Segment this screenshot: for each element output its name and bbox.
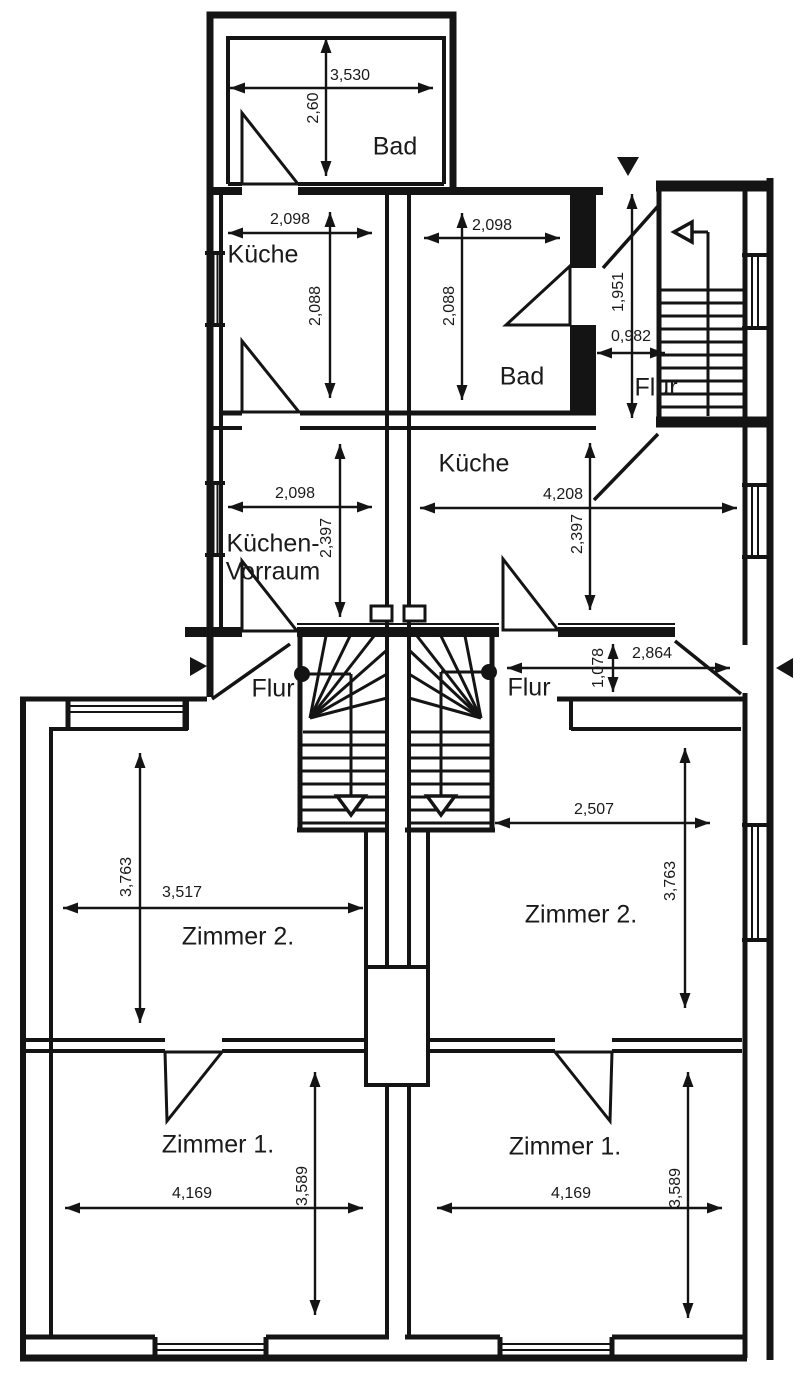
- dim-zimmer1-right-height: 3,589: [667, 1168, 684, 1208]
- walls: [20, 15, 773, 1360]
- dim-flur-top-width: 0,982: [611, 328, 651, 345]
- stairwell-central-right: [409, 636, 497, 823]
- window-zimmer2-left-top: [68, 697, 185, 731]
- stair-down-arrow-icon: [427, 796, 455, 815]
- room-label-vorraum-line1: Küchen-: [226, 530, 319, 558]
- wall-chimney-block: [366, 967, 428, 1085]
- dim-kueche-right-height: 2,397: [569, 514, 586, 554]
- door-bad-top: [242, 113, 298, 184]
- dim-flur-top-height: 1,951: [610, 272, 627, 312]
- dim-kueche-right-width: 4,208: [543, 486, 583, 503]
- room-label-flur-right: Flur: [507, 674, 550, 702]
- dim-kueche-left-height: 2,088: [307, 286, 324, 326]
- room-label-kueche-right: Küche: [439, 450, 510, 478]
- dim-bad-middle-height: 2,088: [441, 286, 458, 326]
- dim-zimmer2-right-width: 2,507: [574, 801, 614, 818]
- entrance-marker-down-icon: [617, 157, 639, 176]
- door-bad-middle: [506, 266, 570, 325]
- room-label-zimmer2-right: Zimmer 2.: [525, 901, 638, 929]
- wall-box-right: [404, 606, 425, 621]
- room-label-zimmer1-left: Zimmer 1.: [162, 1131, 275, 1159]
- floor-plan-page: 3,530 2,60 2,098 2,088 2,098 2,088 1,951…: [0, 0, 800, 1395]
- room-label-flur-left: Flur: [251, 675, 294, 703]
- door-kueche-right-bottom: [503, 559, 558, 630]
- dim-zimmer1-right-width: 4,169: [551, 1185, 591, 1202]
- dim-vorraum-width: 2,098: [275, 485, 315, 502]
- dim-flur-right-width: 2,864: [632, 645, 672, 662]
- dim-bad-top-width: 3,530: [330, 67, 370, 84]
- entrance-marker-right-icon: [190, 657, 207, 676]
- dim-bad-top-height: 2,60: [305, 92, 322, 123]
- room-label-bad-top: Bad: [373, 133, 417, 161]
- dim-kueche-left-width: 2,098: [270, 211, 310, 228]
- door-zimmer1-left: [165, 1052, 222, 1121]
- stair-direction-arrow-icon: [674, 222, 692, 242]
- dim-bad-middle-width: 2,098: [472, 217, 512, 234]
- room-label-kueche-left: Küche: [228, 241, 299, 269]
- room-label-zimmer1-right: Zimmer 1.: [509, 1133, 622, 1161]
- door-leaf-kueche-right-top: [594, 434, 658, 500]
- wall-box-left: [371, 606, 392, 621]
- floor-plan-drawing: 3,530 2,60 2,098 2,088 2,098 2,088 1,951…: [0, 0, 800, 1395]
- dim-vorraum-height: 2,397: [318, 518, 335, 558]
- room-label-vorraum-line2: Vorraum: [226, 558, 320, 586]
- door-kueche-left: [242, 341, 299, 412]
- door-zimmer1-right: [555, 1052, 612, 1121]
- entrance-marker-left-icon: [776, 658, 793, 678]
- room-label-bad-middle: Bad: [500, 363, 544, 391]
- room-label-zimmer2-left: Zimmer 2.: [182, 923, 295, 951]
- dim-zimmer2-right-height: 3,763: [662, 861, 679, 901]
- dim-flur-right-height: 1,078: [590, 648, 607, 688]
- dim-zimmer1-left-height: 3,589: [294, 1166, 311, 1206]
- stairwell-central-left: [294, 636, 387, 823]
- dim-zimmer2-left-width: 3,517: [162, 884, 202, 901]
- stair-down-arrow-icon: [337, 796, 365, 815]
- dim-zimmer2-left-height: 3,763: [118, 857, 135, 897]
- room-label-flur-top: Flur: [634, 374, 677, 402]
- dim-zimmer1-left-width: 4,169: [172, 1185, 212, 1202]
